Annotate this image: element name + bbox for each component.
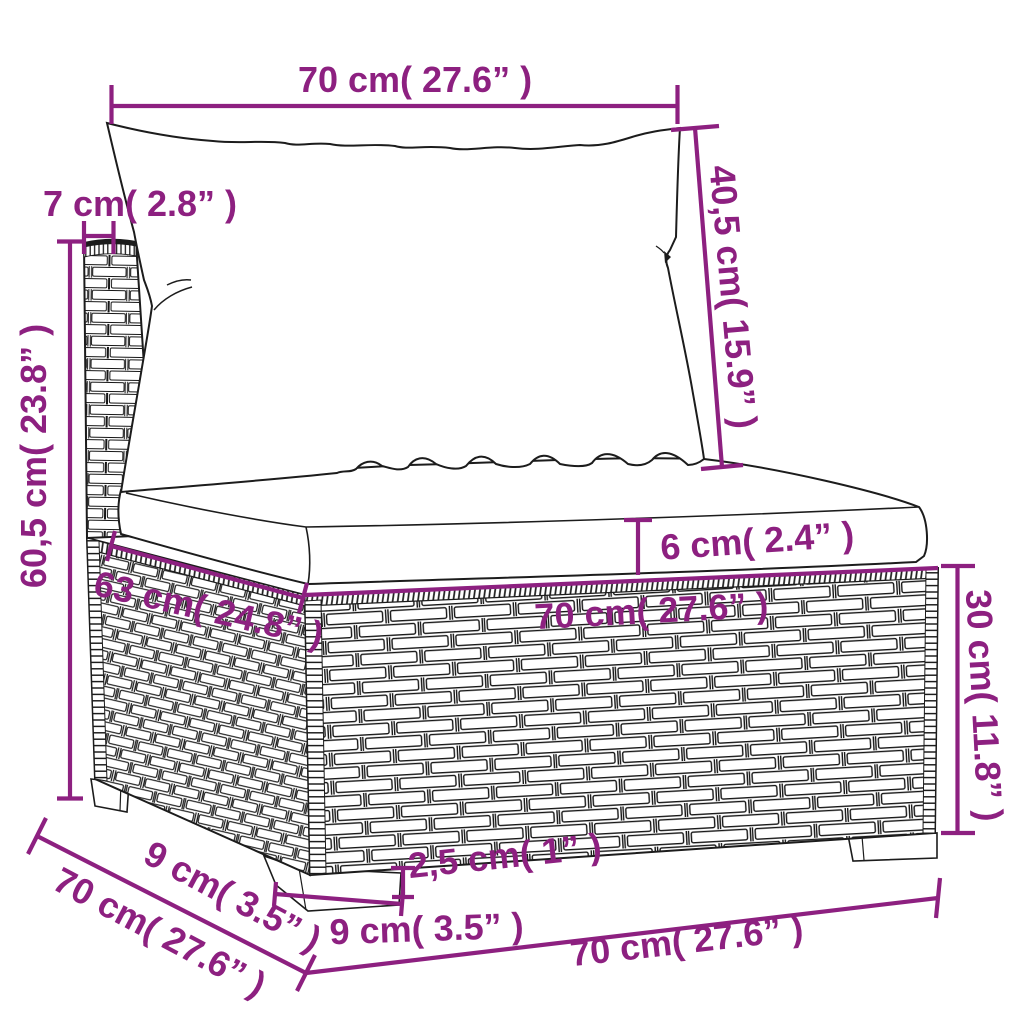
svg-text:70 cm( 27.6” ): 70 cm( 27.6” ) bbox=[298, 59, 532, 100]
svg-text:60,5 cm( 23.8” ): 60,5 cm( 23.8” ) bbox=[13, 324, 54, 588]
svg-text:9 cm( 3.5” ): 9 cm( 3.5” ) bbox=[329, 905, 524, 953]
svg-text:7 cm( 2.8” ): 7 cm( 2.8” ) bbox=[43, 183, 237, 224]
